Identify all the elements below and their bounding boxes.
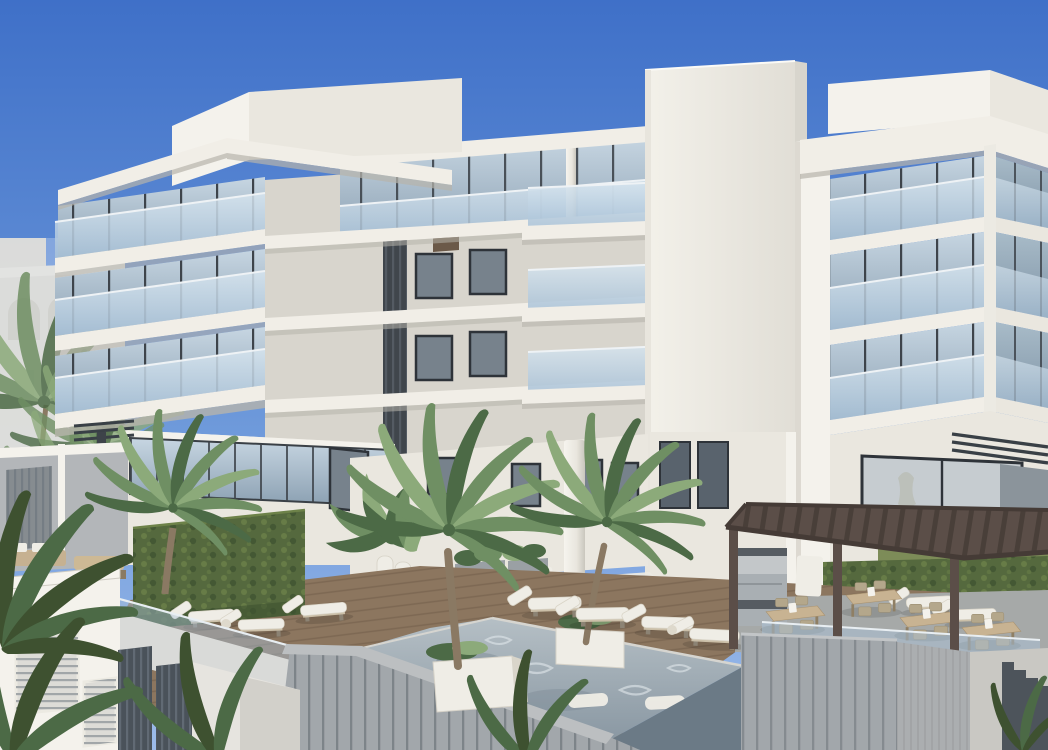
corner-post <box>984 144 996 422</box>
architectural-rendering: Architectural rendering of a modern whit… <box>0 0 1048 750</box>
right-wing-floors <box>830 144 1048 435</box>
left-face-floors <box>55 177 265 437</box>
side-table <box>667 625 677 635</box>
foreground-walls-right <box>741 634 1048 750</box>
